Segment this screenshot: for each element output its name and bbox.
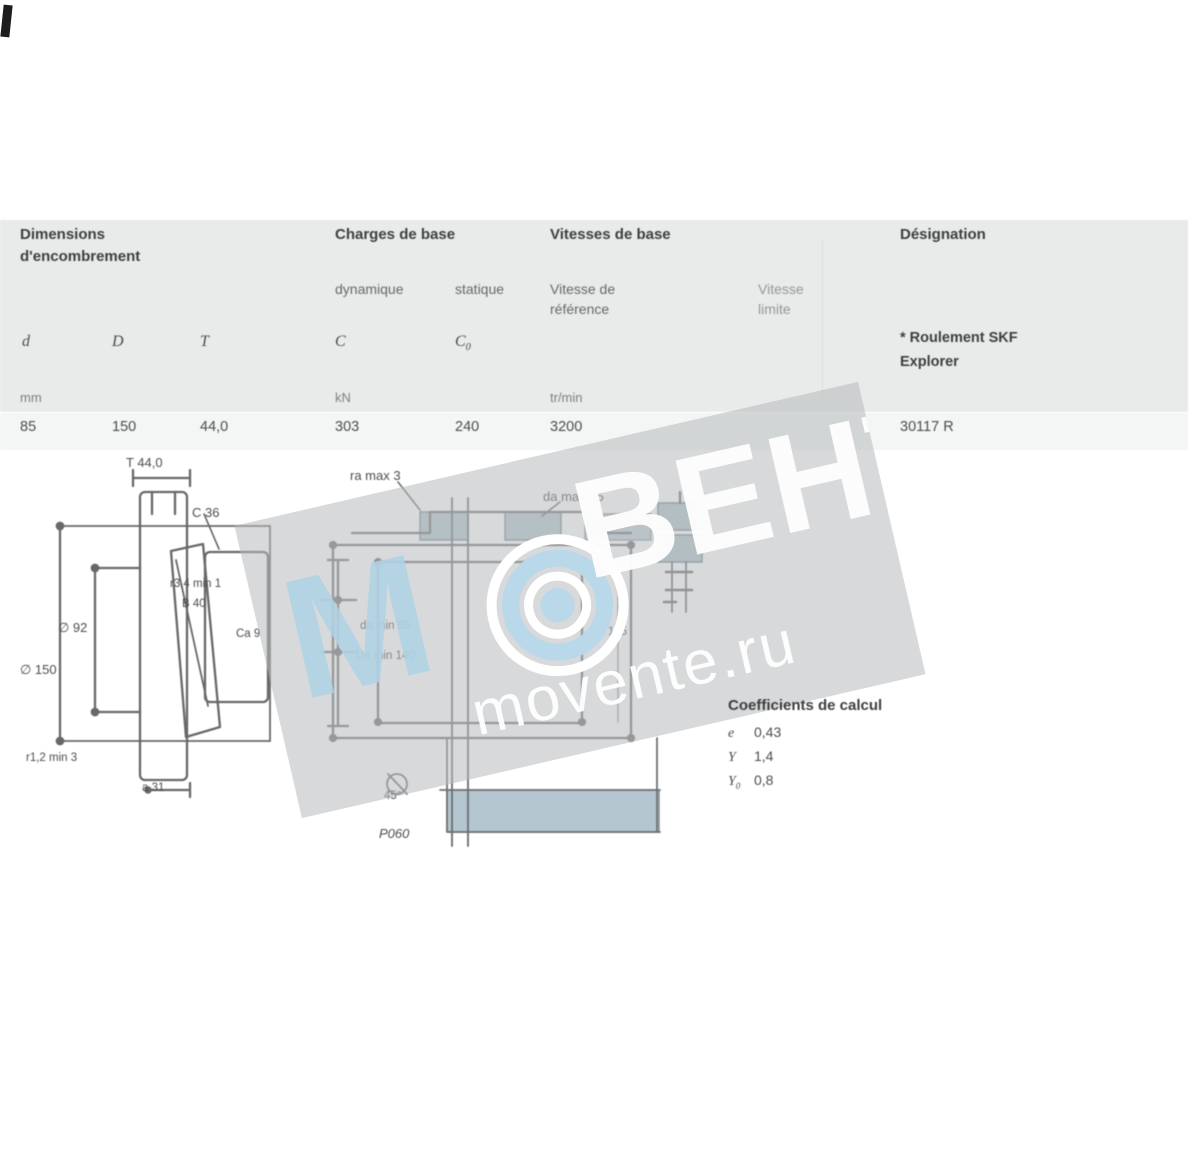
dim-label-ra-max: ra max 3: [350, 468, 401, 483]
calculation-factors: Coefficients de calcul e0,43 Y1,4 Y00,8: [728, 697, 882, 791]
factor-Y: Y1,4: [728, 748, 882, 766]
drawing-note: P060: [379, 826, 409, 841]
calculation-factors-title: Coefficients de calcul: [728, 697, 882, 714]
dim-label-r34: r3,4 min 1: [170, 578, 221, 590]
factor-e: e0,43: [728, 724, 882, 742]
dim-label-d1: ∅ 92: [58, 620, 87, 636]
factor-Y0: Y00,8: [728, 772, 882, 791]
dim-label-B: B 40: [182, 598, 206, 610]
dim-label-a: a 31: [142, 782, 164, 794]
dim-label-r12: r1,2 min 3: [26, 752, 77, 764]
dim-label-T: T 44,0: [126, 455, 163, 470]
dim-label-D: ∅ 150: [20, 662, 57, 678]
dim-label-Ca: Ca 9: [236, 628, 260, 640]
dim-label-C: C 36: [192, 505, 219, 520]
watermark-brand-m: М: [269, 527, 447, 727]
